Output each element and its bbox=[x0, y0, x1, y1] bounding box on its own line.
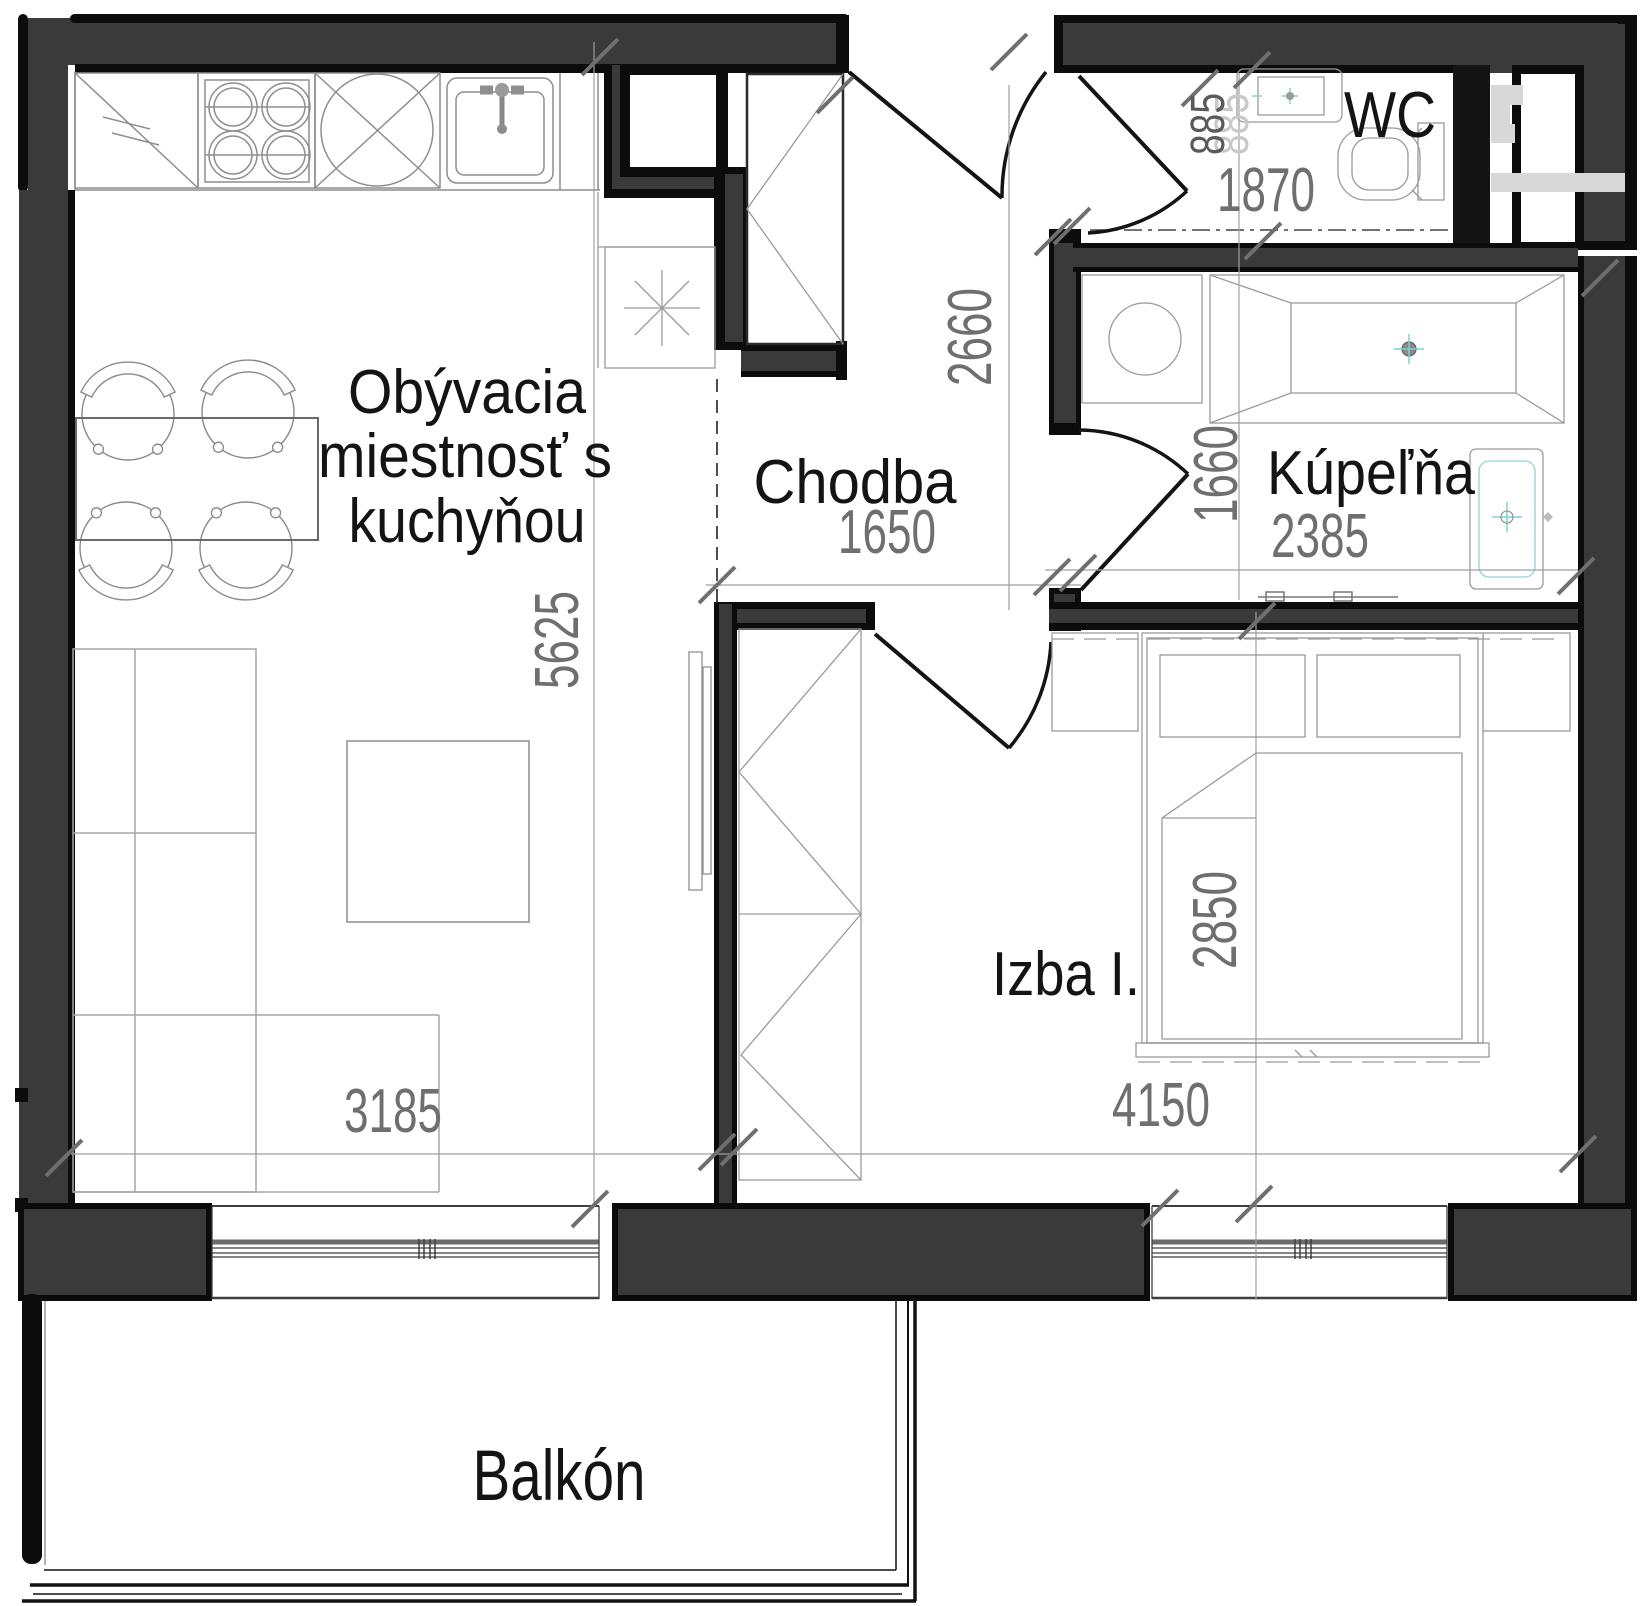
svg-text:Obývacia: Obývacia bbox=[348, 358, 586, 427]
svg-text:Kúpeľňa: Kúpeľňa bbox=[1267, 439, 1475, 508]
svg-text:WC: WC bbox=[1344, 78, 1436, 151]
svg-text:Balkón: Balkón bbox=[473, 1437, 646, 1516]
svg-text:885: 885 bbox=[1182, 93, 1235, 155]
svg-text:2660: 2660 bbox=[936, 288, 1005, 386]
svg-text:Izba I.: Izba I. bbox=[992, 940, 1140, 1009]
svg-text:3185: 3185 bbox=[344, 1077, 442, 1146]
svg-text:1650: 1650 bbox=[838, 498, 936, 567]
svg-text:2850: 2850 bbox=[1181, 871, 1250, 969]
svg-text:kuchyňou: kuchyňou bbox=[349, 487, 586, 556]
svg-text:miestnosť s: miestnosť s bbox=[318, 422, 612, 491]
svg-text:1660: 1660 bbox=[1182, 425, 1251, 523]
svg-text:5625: 5625 bbox=[523, 591, 592, 689]
svg-text:2385: 2385 bbox=[1271, 502, 1369, 571]
svg-text:1870: 1870 bbox=[1217, 156, 1315, 225]
svg-text:4150: 4150 bbox=[1112, 1071, 1210, 1140]
